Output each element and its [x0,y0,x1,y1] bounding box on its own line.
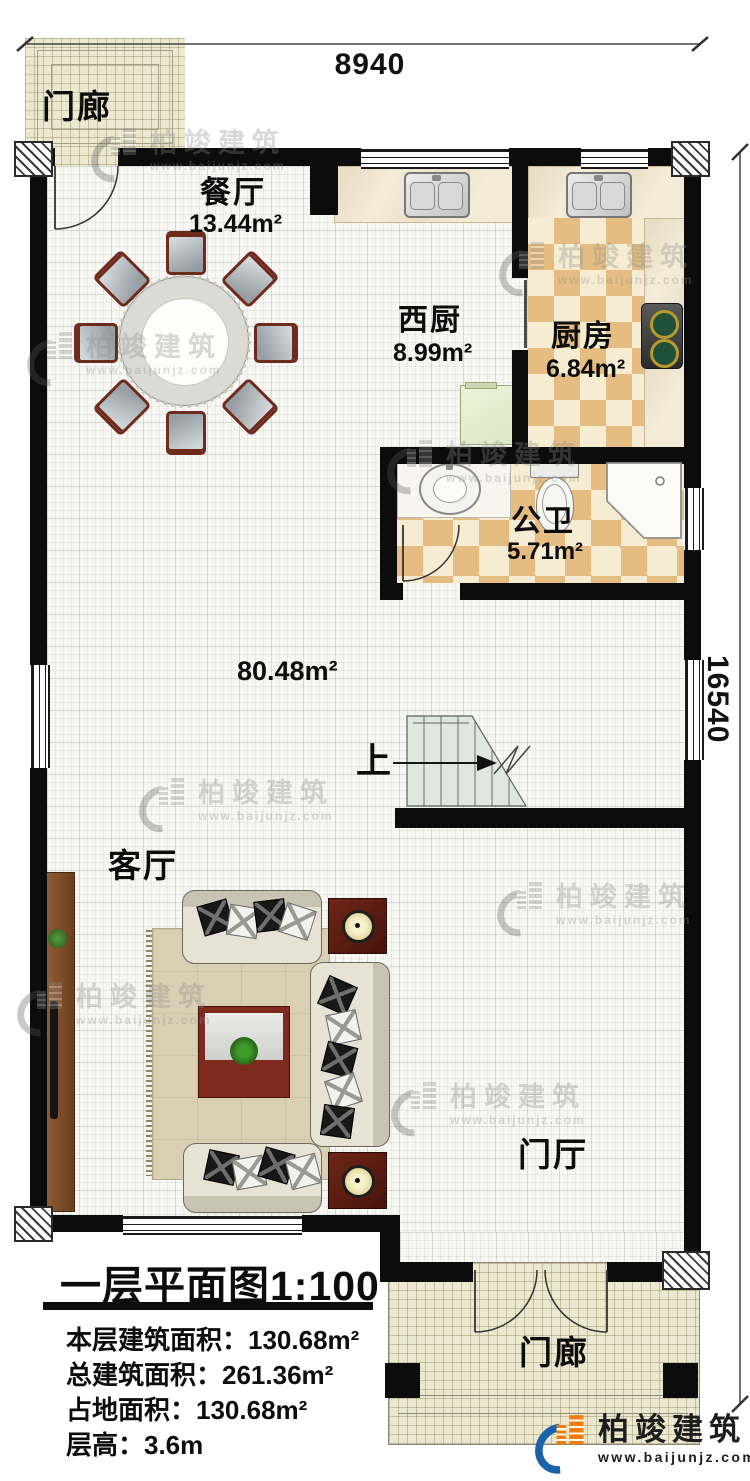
room-area-kitchen: 6.84m² [546,357,625,382]
watermark-name: 柏竣建筑 [558,243,694,273]
watermark-name: 柏竣建筑 [450,1083,586,1113]
watermark-logo-icon [498,882,548,928]
room-label-living: 客厅 [108,849,178,882]
room-label-west-kitchen: 西厨 [398,306,462,336]
watermark-name: 柏竣建筑 [76,983,212,1013]
room-label-foyer: 门厅 [518,1138,588,1171]
watermark: 柏竣建筑 www.baijunjz.com [18,982,212,1028]
title-block-line: 层高：3.6m [66,1425,203,1462]
stairs [407,716,526,806]
room-label-porch-top: 门廊 [42,90,112,123]
watermark-url: www.baijunjz.com [558,273,694,287]
watermark-logo-icon [388,440,438,486]
watermark-name: 柏竣建筑 [198,779,334,809]
watermark-name: 柏竣建筑 [556,883,692,913]
door-arc [545,1270,607,1332]
watermark-name: 柏竣建筑 [86,333,222,363]
room-label-dining: 餐厅 [200,177,266,208]
door-arc [403,525,459,581]
watermark-url: www.baijunjz.com [86,363,222,377]
watermark-url: www.baijunjz.com [198,809,334,823]
room-area-dining: 13.44m² [189,212,282,237]
title-block-line: 占地面积：130.68m² [66,1390,307,1427]
watermark: 柏竣建筑 www.baijunjz.com [500,242,694,288]
watermark-name: 柏竣建筑 [150,129,286,159]
watermark: 柏竣建筑 www.baijunjz.com [388,440,582,486]
watermark-url: www.baijunjz.com [556,913,692,927]
watermark-url: www.baijunjz.com [150,159,286,173]
shower-symbol [607,463,681,538]
title-block-line: 总建筑面积：261.36m² [66,1355,333,1392]
floor-plan-canvas: 柏竣建筑 www.baijunjz.com 柏竣建筑 www.baijunjz.… [0,0,750,1481]
watermark-logo-icon [92,128,142,174]
door-arc [475,1270,537,1332]
watermark: 柏竣建筑 www.baijunjz.com [92,128,286,174]
watermark-logo-icon [500,242,550,288]
dimension-top-label: 8940 [330,48,410,82]
room-area-open: 80.48m² [237,658,338,685]
watermark-name: 柏竣建筑 [446,441,582,471]
stairs-up-label: 上 [356,744,393,779]
watermark-url: www.baijunjz.com [76,1013,212,1027]
room-label-kitchen: 厨房 [551,322,615,352]
room-area-bathroom: 5.71m² [507,540,583,564]
title-block-line: 本层建筑面积：130.68m² [66,1320,359,1357]
title-underline [43,1302,373,1310]
watermark: 柏竣建筑 www.baijunjz.com [28,332,222,378]
watermark: 柏竣建筑 www.baijunjz.com [140,778,334,824]
brand-logo: 柏竣建筑 www.baijunjz.com [538,1414,750,1465]
room-area-west-kitchen: 8.99m² [393,341,472,366]
dimension-right-label: 16540 [700,655,734,743]
brand-name: 柏竣建筑 [598,1414,750,1445]
watermark-url: www.baijunjz.com [446,471,582,485]
brand-logo-icon [536,1415,590,1465]
watermark-logo-icon [140,778,190,824]
watermark-url: www.baijunjz.com [450,1113,586,1127]
watermark-logo-icon [28,332,78,378]
brand-url: www.baijunjz.com [598,1449,750,1465]
watermark: 柏竣建筑 www.baijunjz.com [392,1082,586,1128]
room-label-bathroom: 公卫 [511,507,575,537]
watermark-logo-icon [18,982,68,1028]
watermark: 柏竣建筑 www.baijunjz.com [498,882,692,928]
watermark-logo-icon [392,1082,442,1128]
room-label-porch-bottom: 门廊 [519,1336,589,1369]
